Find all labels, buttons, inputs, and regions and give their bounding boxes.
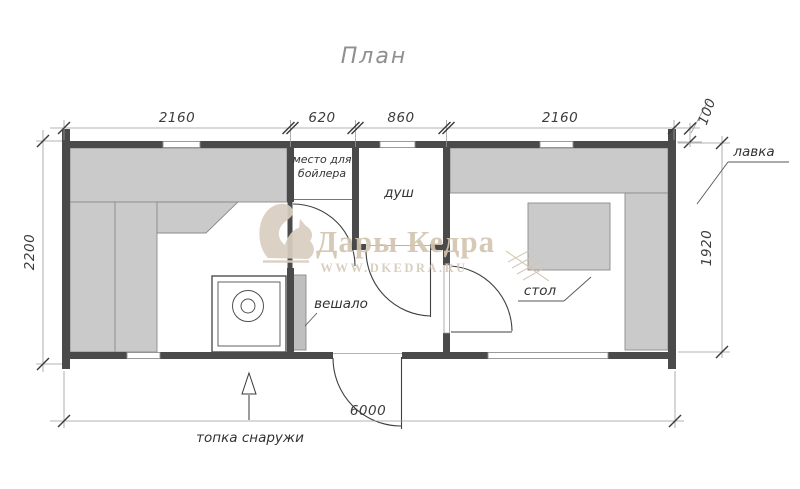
dim-top-left-room: 2160 [159,110,195,126]
hanger-rail [293,275,306,350]
wall-right [668,129,676,369]
dim-top-boiler: 620 [308,110,335,126]
sauna-top-bench [70,148,287,202]
dim-top-right-room: 2160 [542,110,578,126]
wall-top-seg1 [70,141,163,148]
bench-label: лавка [732,144,774,160]
squirrel-icon [259,204,314,262]
restroom-door-frame [444,265,450,333]
dim-top-shower: 860 [387,110,414,126]
shower-label: душ [383,185,414,201]
window-restroom-bottom [488,353,608,359]
hanger-label: вешало [314,296,368,312]
restroom-top-bench [450,148,668,193]
watermark: Дары Кедра WWW.DKEDRA.RU [259,204,549,281]
watermark-brand: Дары Кедра [316,224,495,259]
floor-plan-page: План [0,0,800,489]
stove [212,276,286,352]
floor-plan-drawing: План [0,0,800,489]
wall-left [62,129,70,369]
wall-top-seg3 [415,141,540,148]
restroom-right-bench [625,193,668,350]
dim-top-overhang: 100 [695,96,719,127]
window-sauna-top [163,142,200,148]
plan-title: План [341,44,407,69]
wall-bottom-seg2 [160,352,333,359]
boiler-label-line2: бойлера [298,167,346,180]
boiler-label-line1: место для [292,153,351,166]
wall-bottom-seg1 [70,352,127,359]
wall-top-seg2 [200,141,380,148]
dim-left-height: 2200 [22,234,38,270]
bench-leader [697,162,728,204]
hanger-leader [305,313,317,326]
restroom-door-arc [451,266,512,331]
watermark-url: WWW.DKEDRA.RU [320,261,467,275]
wall-top-seg4 [573,141,668,148]
wall-bottom-seg4 [608,352,668,359]
window-sauna-bottom [127,353,160,359]
furnace-note-label: топка снаружи [196,430,304,446]
furnace-arrow-icon [242,373,256,420]
table-leader [564,277,591,301]
shower-door-arc [366,250,431,316]
window-restroom-top [540,142,573,148]
sauna-middle-bench [115,202,157,352]
partition-restroom-lower [443,333,450,352]
window-shower-top [380,142,415,148]
dim-bottom-total: 6000 [350,403,386,419]
table [528,203,610,270]
sauna-left-bench [70,202,115,352]
stove-outer [212,276,286,352]
table-label: стол [524,283,557,299]
wall-bottom-seg3 [402,352,488,359]
partition-sauna-lower [287,268,294,352]
dim-right-inner-height: 1920 [699,230,715,266]
sauna-corner-shelf [157,202,238,233]
